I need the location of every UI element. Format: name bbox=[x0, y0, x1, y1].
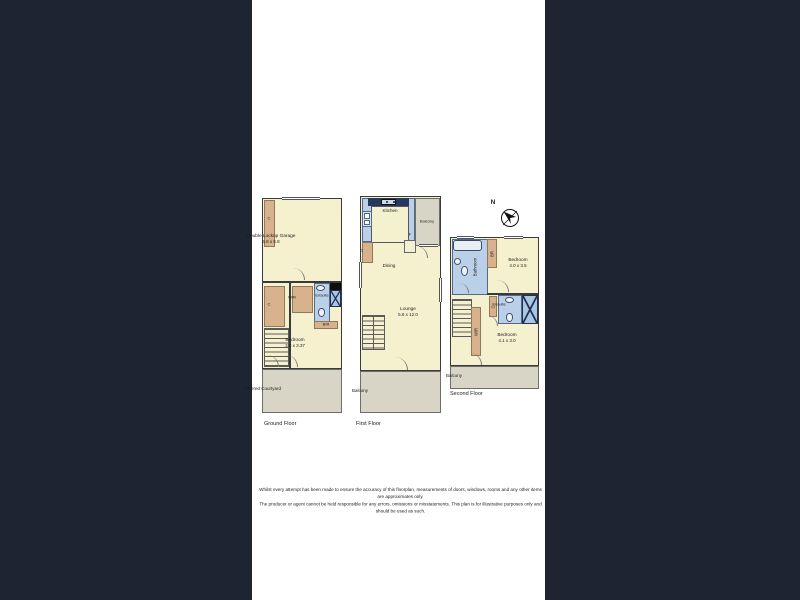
ground-floor-title: Ground Floor bbox=[264, 420, 334, 427]
second-ensuite-label: Ensuite bbox=[488, 302, 510, 307]
letterbox-right bbox=[545, 0, 800, 600]
bathroom-sink-icon bbox=[454, 258, 461, 265]
floorplan-page: C Double Lockup Garage 5.8 x 5.8 C WIR E… bbox=[0, 0, 800, 600]
disclaimer-line1: Whilst every attempt has been made to en… bbox=[256, 486, 545, 500]
bathroom-label: Bathroom bbox=[473, 257, 478, 277]
ground-bedroom-label: Bedroom 3.5 x 3.37 bbox=[273, 337, 317, 349]
garage-label: Double Lockup Garage 5.8 x 5.8 bbox=[239, 233, 303, 245]
first-stairs bbox=[362, 315, 385, 350]
ground-courtyard-label: Covered Courtyard bbox=[222, 386, 302, 392]
stair-rail bbox=[373, 316, 374, 349]
second-stairs bbox=[452, 299, 472, 337]
first-balcony-bottom-label: Balcony bbox=[320, 388, 400, 394]
garage-dim: 5.8 x 5.8 bbox=[239, 239, 303, 245]
ground-bir-label: BIR bbox=[317, 322, 335, 327]
second-floor-title: Second Floor bbox=[450, 390, 520, 397]
garage-door-window bbox=[282, 197, 320, 200]
second-ensuite-toilet-icon bbox=[506, 313, 513, 322]
ground-ensuite-sink-icon bbox=[316, 285, 325, 291]
disclaimer: Whilst every attempt has been made to en… bbox=[256, 486, 545, 515]
dining-label: Dining bbox=[367, 263, 411, 269]
bathtub-icon bbox=[453, 240, 482, 251]
disclaimer-line2: The producer or agent cannot be held res… bbox=[256, 500, 545, 514]
second-wir-label: WIR bbox=[474, 325, 479, 340]
second-bedroom2-label: Bedroom 4.1 x 3.0 bbox=[485, 332, 529, 344]
first-floor-title: First Floor bbox=[356, 420, 426, 427]
lounge-window bbox=[359, 262, 362, 288]
ground-closet-top-label: C bbox=[264, 216, 274, 221]
cooktop-icon bbox=[381, 199, 396, 205]
bathroom-toilet-icon bbox=[461, 266, 468, 276]
ground-ensuite-toilet-icon bbox=[318, 308, 325, 317]
second-bedroom1-label: Bedroom 4.0 x 3.5 bbox=[497, 257, 539, 269]
second-robe-label: BR bbox=[490, 248, 495, 260]
compass-icon bbox=[500, 208, 520, 228]
fridge-space bbox=[404, 240, 416, 253]
first-closet-label: C bbox=[357, 248, 367, 253]
second-shower-icon bbox=[522, 295, 538, 324]
fridge-label: F bbox=[406, 232, 414, 237]
lounge-window bbox=[439, 278, 442, 302]
lounge-label: Lounge 5.6 x 12.0 bbox=[386, 306, 430, 318]
compass-north-label: N bbox=[486, 198, 500, 206]
second-balcony-label: Balcony bbox=[414, 373, 494, 379]
ground-wir-label: WIR bbox=[282, 295, 302, 300]
bedroom-window bbox=[504, 236, 523, 239]
ground-shower-icon bbox=[330, 290, 341, 307]
letterbox-left bbox=[0, 0, 252, 600]
first-balcony-top-label: Balcony bbox=[407, 219, 447, 224]
ground-solid-block bbox=[330, 283, 341, 290]
kitchen-label: Kitchen bbox=[368, 208, 412, 214]
ground-closet-mid-label: C bbox=[264, 302, 274, 307]
